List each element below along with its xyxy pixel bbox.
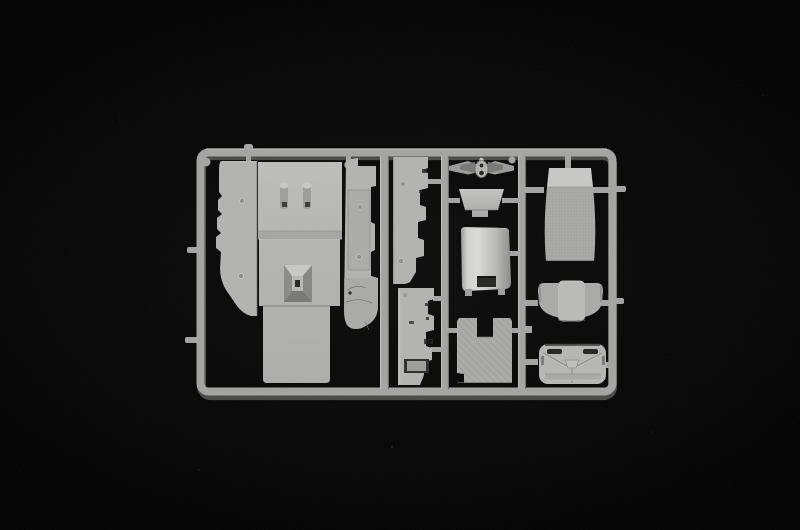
film-grain-overlay [0, 0, 800, 530]
sprue-photo [0, 0, 800, 530]
photo-stage [0, 0, 800, 530]
